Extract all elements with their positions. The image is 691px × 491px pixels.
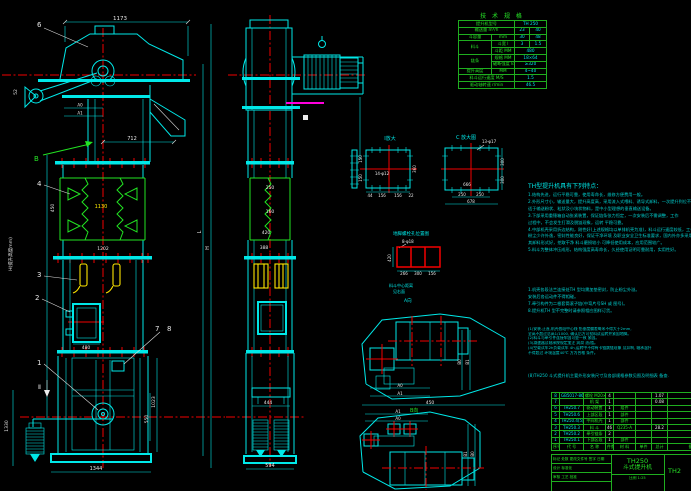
take-up-weight [26, 428, 44, 454]
platform1-dim-a0: A0 [397, 383, 403, 388]
note-line: 适于输送粉状、粒状及小块状物料，是中小型理想的垂直输送设备。 [528, 206, 691, 213]
dim-1130: 1130 [95, 204, 108, 210]
spec-label: 驱动轴转速 r/min [459, 82, 515, 89]
dim-712: 712 [127, 136, 137, 142]
dim-1344: 1344 [90, 466, 103, 472]
spec-value: 46.5 [515, 82, 547, 89]
balloon-2: 2 [35, 294, 39, 302]
spec-value: 48 [530, 34, 547, 41]
drawing-number: TH2 [664, 467, 691, 475]
bom-header-no: 序号 [552, 444, 560, 450]
reducer [304, 55, 340, 89]
spec-table: 提升机型号TH 250 输送量 m³/h2340 斗容量mm3048 料斗斗宽 … [458, 20, 547, 89]
front-view: 1173 712 A0 A1 52 6 B H(提升高度mm) 450 1130… [2, 16, 225, 472]
detail-i-holes: 14-φ12 [375, 171, 390, 176]
balloon-4: 4 [37, 180, 42, 188]
detail-c-label: C 放大图 [456, 134, 476, 141]
spec-value: 23 [515, 27, 530, 34]
platform1-dim-b1: B1 [465, 359, 470, 365]
notes-group-2: 1.机壳各段法兰连接处TH 型均需加垫密封，防止粉尘外溢。 安装后各运动件不得相… [528, 287, 691, 315]
spec-group-bucket: 料斗 [459, 41, 492, 55]
dim-a1: A1 [77, 111, 83, 116]
spec-value: 480 [515, 48, 547, 55]
spec-label: 破断强度 kN [492, 61, 515, 68]
spec-label: 斗距 MM [492, 48, 515, 55]
note-line: 其卸料形式好，挖取干净 料斗磨损较小 可降低使用成本，应用范围较广。 [528, 240, 691, 247]
anchor-dim-156: 156 [428, 271, 436, 276]
balloon-8: 8 [167, 325, 171, 333]
drawing-title: 斗式提升机 [611, 465, 664, 472]
bom-header-material: 材 料 [614, 444, 636, 450]
title-block-row-design: 设计 标准化 [552, 464, 611, 473]
spec-label: 提升机型号 [459, 21, 515, 28]
spec-label: 提升高度 [459, 68, 492, 75]
spec-table-title: 技 术 规 格 [458, 11, 546, 20]
dim-420: 420 [262, 230, 271, 236]
detail-i-dim-360: 360 [412, 165, 417, 173]
detail-i-dim-156b: 156 [394, 193, 402, 198]
title-block-signature-grid: 标记 处数 更改文件号 签字 日期 设计 标准化 审核 工艺 批准 [552, 455, 612, 491]
section-ii-label: Ⅱ [38, 384, 41, 391]
spec-value: 18×64 [515, 54, 547, 61]
spec-label: 输送量 m³/h [459, 27, 515, 34]
dim-388: 388 [260, 245, 269, 251]
detail-c-dim-666: 666 [463, 182, 471, 187]
platform2-dim-a1: A1 [395, 409, 401, 414]
drawing-model: TH250 [611, 458, 664, 465]
anchor-detail-title: 地脚螺栓孔位置图 [393, 230, 429, 237]
spec-label: 斗容量 [459, 34, 492, 41]
title-block-number-cell: TH2 [664, 455, 691, 491]
platform2-dim-b1: B1 [463, 451, 468, 457]
spec-value: ≥320 [515, 61, 547, 68]
title-block-center: TH250 斗式提升机 比例 1:25 [611, 455, 665, 491]
note-line: 安装后各运动件不得相碰。 [528, 294, 691, 301]
dim-550: 550 [144, 415, 150, 424]
bom-header-name: 名 称 [584, 444, 606, 450]
note-line: 4.中部机壳采用折边结构，刚性好(上述规格均以单排机壳为准)，料斗运行速度较低，… [528, 227, 691, 234]
spec-value: 40 [530, 27, 547, 34]
spec-value: 1.5 [515, 75, 547, 82]
dim-480: 480 [82, 345, 91, 351]
anchor-dim-266: 266 [400, 271, 408, 276]
anchor-dim-300: 300 [414, 271, 422, 276]
anchor-note-a: 料斗中心距离 [389, 282, 413, 288]
bom-header-unit-weight: 单件 [636, 444, 652, 450]
detail-c-dim-250b: 250 [476, 192, 484, 197]
detail-c-dim-678: 678 [467, 199, 475, 204]
anchor-note-b: 见右面 [393, 288, 405, 294]
note-line: 8.提升机TH 型不完整时请参照相应图样订货。 [528, 308, 691, 315]
balloon-1: 1 [37, 359, 41, 367]
detail-i-dim-150b: 150 [358, 174, 363, 182]
view-b-detail-label: B向 [410, 407, 418, 414]
note-line: 7.牵引构件为二根套筒滚子链(中弯片号SH 或 图号)。 [528, 301, 691, 308]
bom-header-total-weight: 总计 [652, 444, 668, 450]
dim-1202: 1202 [97, 246, 109, 252]
dim-h-label: H(提升高度mm) [7, 237, 14, 271]
anchor-holes-note: 8-φ18 [402, 239, 414, 244]
dim-594: 594 [265, 463, 275, 469]
detail-i-dim-150a: 150 [358, 155, 363, 163]
drawing-scale: 比例 1:25 [611, 474, 664, 481]
note-line: 1.机壳各段法兰连接处TH 型均需加垫密封，防止粉尘外溢。 [528, 287, 691, 294]
dim-1173: 1173 [113, 16, 127, 22]
note-line: 2.外形尺寸小，输送量大，提升高度高，采用流入式喂料、诱导式卸料，一次提升到位不… [528, 199, 691, 206]
parts-list: 8 GB5017-86 螺栓 M20×85 4 1.07 7 机 架 1 [551, 392, 691, 455]
spec-group-chain: 链条 [459, 54, 492, 68]
spec-value: 1.5 [530, 41, 547, 48]
dim-1330: 1330 [4, 420, 10, 432]
bom-header-qty: 件数 [606, 444, 614, 450]
title-block-row-check: 审核 工艺 批准 [552, 473, 611, 482]
dim-a0: A0 [77, 103, 83, 108]
note-line: 5.料斗为整体冲压成形，结构强度高寿命长，久经使用证明可靠耐用，实用性好。 [528, 247, 691, 254]
detail-c-dim-250a: 250 [458, 192, 466, 197]
dim-160: 160 [266, 209, 275, 215]
note-line: 不得超过 环境温度40℃ 方为合格 条件。 [528, 351, 691, 356]
drive-platform-top-view: A0 A1 B0 B1 450 [362, 314, 505, 406]
note-line: 过程中，不会发生打滑及脱链现象，运转 平稳可靠。 [528, 220, 691, 227]
note-line: (8)TH250 斗式提升机主要外形安装尺寸及各部规格参数见图及明细表 备查. [528, 373, 691, 380]
platform2-dim-a0: A0 [395, 416, 401, 421]
bom-header-remark: 备注 [668, 444, 691, 450]
bucket-side [254, 264, 288, 288]
detail-c-dim-300b: 300 [500, 176, 505, 184]
platform1-dim-450: 450 [426, 400, 435, 406]
detail-c-holes: 13-φ17 [482, 139, 497, 144]
notes-title: TH型提升机具有下列特点： [528, 181, 691, 190]
drive-platform-b-view: B向 A1 A0 B1 B0 [360, 407, 484, 490]
notes-group-4: (8)TH250 斗式提升机主要外形安装尺寸及各部规格参数见图及明细表 备查. [528, 373, 691, 380]
spec-label: 斗宽 l [492, 41, 515, 48]
selection-grip[interactable] [303, 115, 308, 120]
detail-i-dim-156a: 156 [378, 193, 386, 198]
dim-h: H [205, 246, 211, 250]
balloon-6: 6 [37, 21, 42, 29]
dim-l: L [197, 230, 203, 233]
notes-group-1: 1.结构先进，运行平稳可靠，使用寿命长，维修方便费用一般。2.外形尺寸小，输送量… [528, 192, 691, 254]
view-b-label: B [34, 155, 39, 163]
inspection-door-side [258, 302, 286, 334]
platform1-dim-b0: B0 [457, 359, 462, 365]
dim-450: 450 [50, 204, 56, 213]
dim-1023: 1023 [151, 396, 157, 408]
detail-i-dim-22: 22 [408, 193, 414, 198]
anchor-bolt-detail: 地脚螺栓孔位置图 8-φ18 420 266 300 156 料斗中心距离 见右… [387, 230, 440, 304]
dim-444: 444 [264, 400, 273, 406]
balloon-3: 3 [37, 271, 41, 279]
note-line: 1.结构先进，运行平稳可靠，使用寿命长，维修方便费用一般。 [528, 192, 691, 199]
bucket-front [73, 264, 120, 293]
notes-group-3: (1)安装.正直,机壳各段中心线 铅垂度偏差每米不得大于2mm, 全高不超过总高… [528, 327, 691, 355]
side-view: 250 160 420 388 444 594 [226, 15, 366, 469]
bom-header-row: 序号 代 号 名 称 件数 材 料 单件 总计 备注 [552, 444, 691, 450]
spec-value: 3 [515, 41, 530, 48]
spec-unit: mm [492, 34, 515, 41]
view-a-label: A向 [404, 297, 412, 304]
balloon-7: 7 [155, 325, 159, 333]
dim-52: 52 [13, 89, 19, 95]
spec-label: 料斗运行速度 M/S [459, 75, 515, 82]
cad-drawing-canvas: 1173 712 A0 A1 52 6 B H(提升高度mm) 450 1130… [0, 0, 691, 491]
dim-250: 250 [266, 185, 275, 191]
bom-header-code: 代 号 [560, 444, 584, 450]
spec-unit: MM [492, 68, 515, 75]
spec-value: TH 250 [515, 21, 547, 28]
detail-c-dim-300a: 300 [500, 158, 505, 166]
title-block: 标记 处数 更改文件号 签字 日期 设计 标准化 审核 工艺 批准 TH250 … [551, 454, 691, 491]
spec-value: 4~40 [515, 68, 547, 75]
notes-block: TH型提升机具有下列特点： 1.结构先进，运行平稳可靠，使用寿命长，维修方便费用… [528, 181, 691, 396]
take-up-screws [253, 420, 289, 450]
platform1-dim-a1: A1 [397, 391, 403, 396]
detail-i-dim-44: 44 [367, 193, 373, 198]
spec-label: 规格 MM [492, 54, 515, 61]
anchor-dim-420: 420 [387, 254, 392, 262]
detail-i-label: Ⅰ放大 [384, 135, 395, 142]
title-block-row-marks: 标记 处数 更改文件号 签字 日期 [552, 455, 611, 464]
note-line: 3.下部采用重锤箱自动张紧装置，保证链条张力恒定，一次安装后不需调整，工作 [528, 213, 691, 220]
note-line: 粉尘少许外逸，密封性能良好，保证干净环境 及职业安全卫生标准要求，国内外亦多采用… [528, 233, 691, 240]
spec-value: 30 [515, 34, 530, 41]
motor [340, 58, 358, 88]
detail-c-flange: C 放大图 13-φ17 666 250 250 678 300 300 [441, 134, 505, 204]
platform2-dim-b0: B0 [470, 451, 475, 457]
